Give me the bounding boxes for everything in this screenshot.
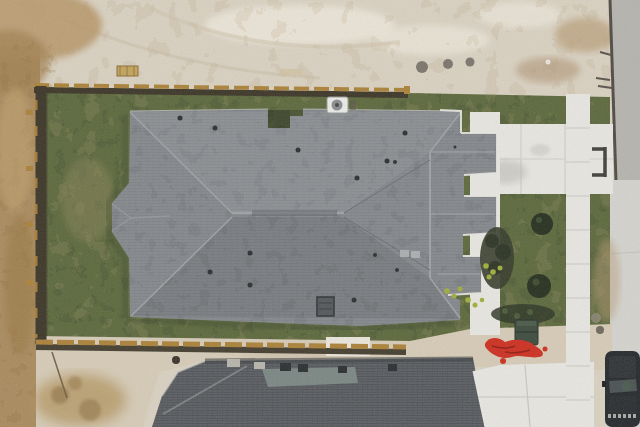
aerial-photo: [0, 0, 640, 427]
photo-grain-overlay: [0, 0, 640, 427]
aerial-photo-viewport: [0, 0, 640, 427]
